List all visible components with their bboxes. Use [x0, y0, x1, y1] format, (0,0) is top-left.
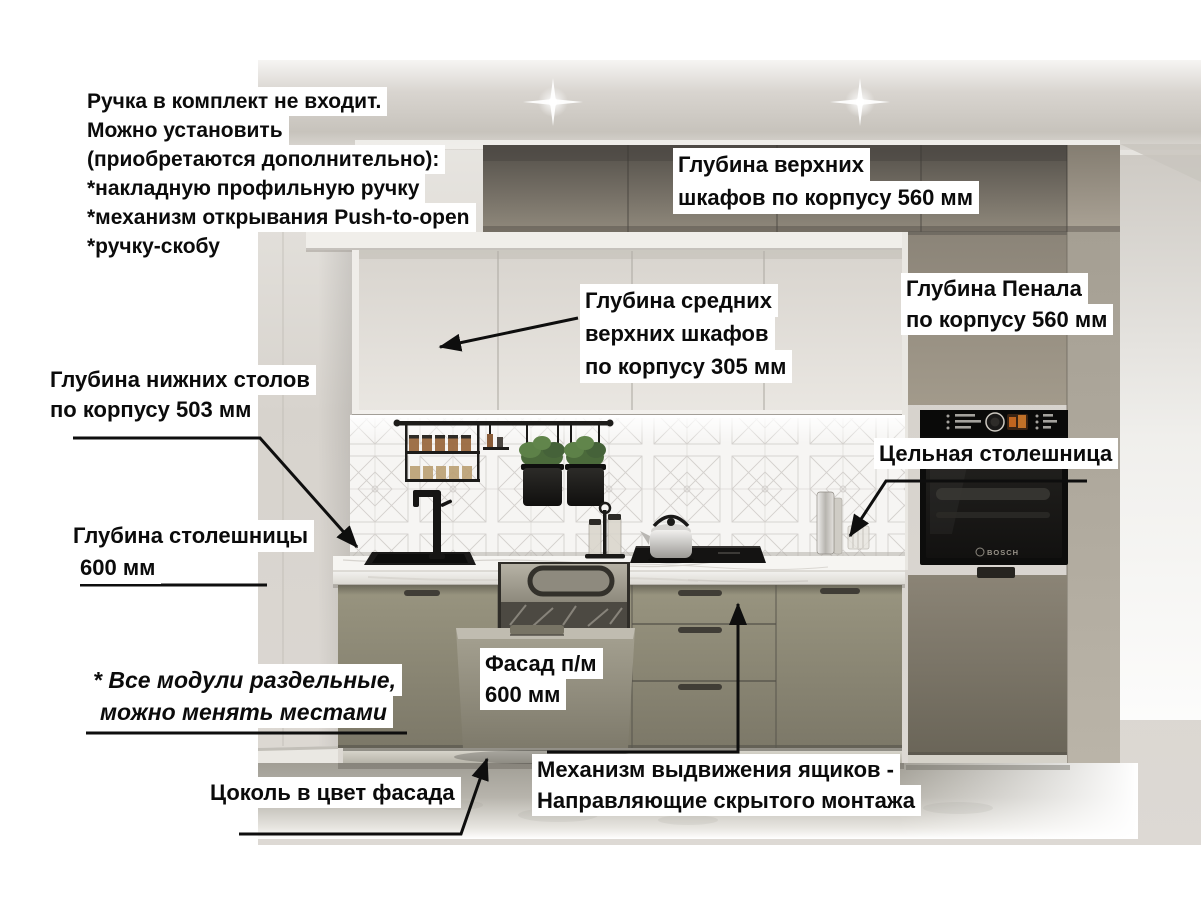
label-dishwasher-facade: Фасад п/м 600 мм	[480, 648, 603, 710]
label-plinth-note: Цоколь в цвет фасада	[205, 777, 461, 808]
oven-display	[1007, 414, 1028, 430]
oven: BOSCH	[920, 410, 1068, 565]
label-handle-note: Ручка в комплект не входит. Можно устано…	[82, 87, 476, 261]
label-base-cabinet-depth: Глубина нижних столов по корпусу 503 мм	[45, 365, 316, 425]
oven-control-panel	[920, 410, 1068, 436]
label-mid-upper-cabinet-depth: Глубина средних верхних шкафов по корпус…	[580, 284, 792, 383]
annotated-kitchen-product-image: BOSCH	[0, 0, 1201, 900]
label-solid-countertop: Цельная столешница	[874, 438, 1118, 469]
label-tall-cabinet-depth: Глубина Пенала по корпусу 560 мм	[901, 273, 1113, 335]
label-countertop-depth: Глубина столешницы 600 мм	[68, 520, 314, 584]
sink	[364, 552, 476, 565]
label-modules-note: * Все модули раздельные, можно менять ме…	[88, 664, 402, 728]
label-drawer-mechanism: Механизм выдвижения ящиков - Направляющи…	[532, 754, 921, 816]
label-upper-cabinet-depth: Глубина верхних шкафов по корпусу 560 мм	[673, 148, 979, 214]
ribbed-glass	[848, 526, 869, 549]
svg-text:BOSCH: BOSCH	[987, 548, 1019, 557]
cutting-board	[817, 492, 842, 554]
